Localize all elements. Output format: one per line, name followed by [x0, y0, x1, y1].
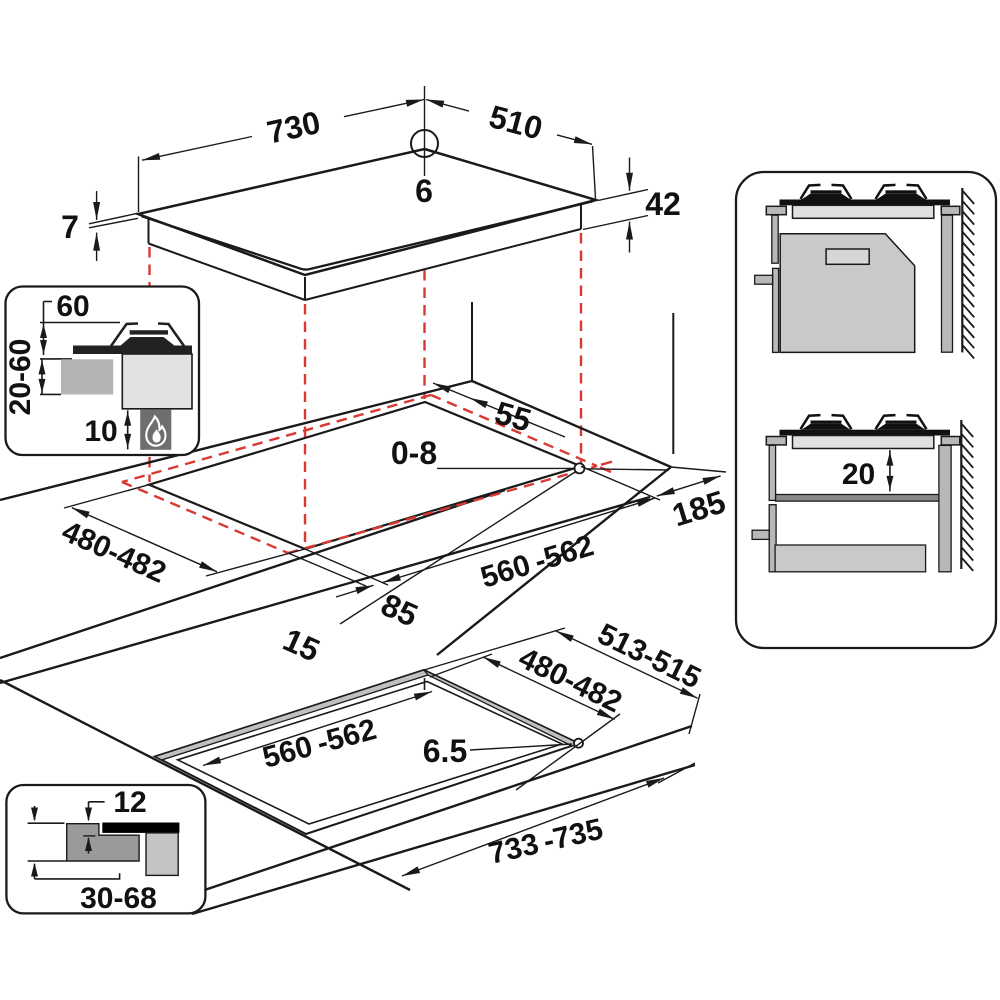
- svg-text:30-68: 30-68: [80, 882, 157, 915]
- svg-text:42: 42: [645, 186, 681, 222]
- svg-text:60: 60: [56, 290, 89, 323]
- svg-text:20: 20: [842, 458, 875, 491]
- svg-text:7: 7: [61, 209, 79, 245]
- svg-text:6.5: 6.5: [423, 733, 467, 769]
- svg-text:12: 12: [113, 786, 146, 819]
- svg-text:20-60: 20-60: [4, 339, 37, 416]
- svg-text:0-8: 0-8: [391, 435, 437, 471]
- svg-text:10: 10: [84, 415, 117, 448]
- svg-text:6: 6: [415, 173, 433, 209]
